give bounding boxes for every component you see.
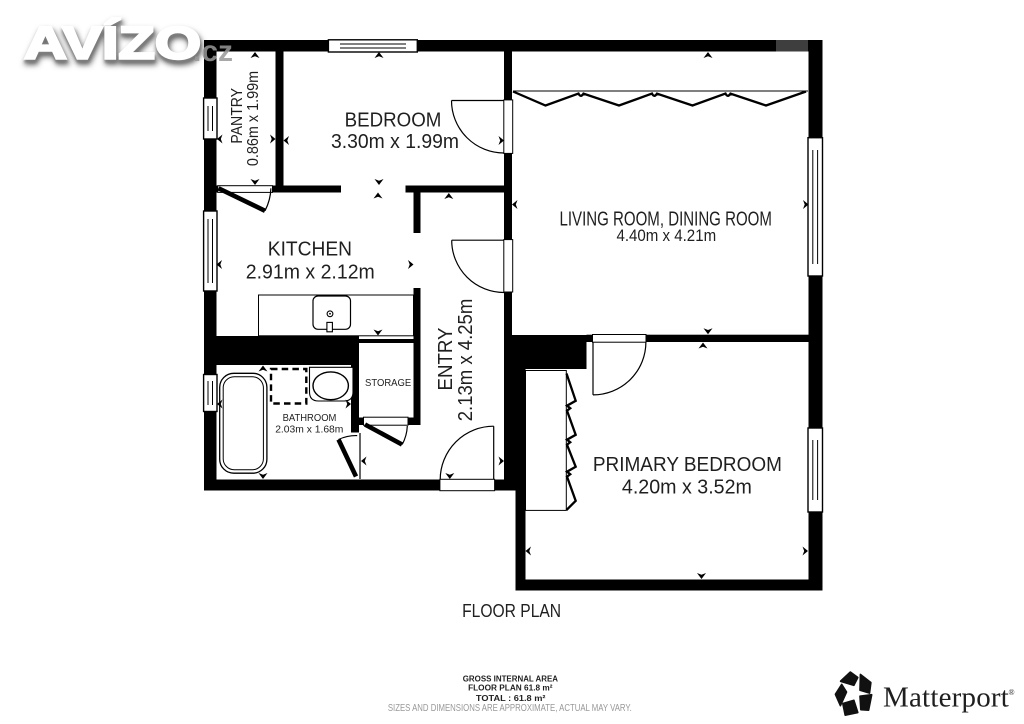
svg-text:PRIMARY BEDROOM: PRIMARY BEDROOM: [593, 454, 782, 476]
svg-text:4.20m x 3.52m: 4.20m x 3.52m: [622, 476, 752, 498]
svg-text:FLOOR PLAN 61.8 m²: FLOOR PLAN 61.8 m²: [468, 683, 553, 693]
svg-text:KITCHEN: KITCHEN: [268, 239, 352, 261]
svg-text:SIZES AND DIMENSIONS ARE APPRO: SIZES AND DIMENSIONS ARE APPROXIMATE, AC…: [388, 703, 632, 714]
svg-text:2.91m x 2.12m: 2.91m x 2.12m: [246, 261, 375, 283]
svg-text:AVÍZO: AVÍZO: [24, 18, 201, 69]
svg-text:2.03m x 1.68m: 2.03m x 1.68m: [275, 424, 343, 435]
svg-text:3.30m x 1.99m: 3.30m x 1.99m: [331, 131, 459, 153]
svg-text:®: ®: [1009, 688, 1015, 697]
svg-text:Matterport: Matterport: [883, 681, 1009, 713]
svg-text:BATHROOM: BATHROOM: [283, 413, 337, 424]
svg-text:BEDROOM: BEDROOM: [345, 109, 442, 131]
svg-text:PANTRY: PANTRY: [229, 88, 246, 144]
svg-text:ENTRY: ENTRY: [435, 328, 457, 391]
svg-text:FLOOR PLAN: FLOOR PLAN: [462, 600, 561, 621]
svg-text:0.86m x 1.99m: 0.86m x 1.99m: [245, 71, 262, 166]
svg-text:TOTAL : 61.8 m²: TOTAL : 61.8 m²: [476, 693, 546, 703]
svg-text:4.40m x 4.21m: 4.40m x 4.21m: [616, 227, 716, 245]
svg-text:2.13m x 4.25m: 2.13m x 4.25m: [455, 299, 477, 422]
svg-text:STORAGE: STORAGE: [365, 378, 411, 389]
svg-text:.cz: .cz: [193, 35, 233, 68]
